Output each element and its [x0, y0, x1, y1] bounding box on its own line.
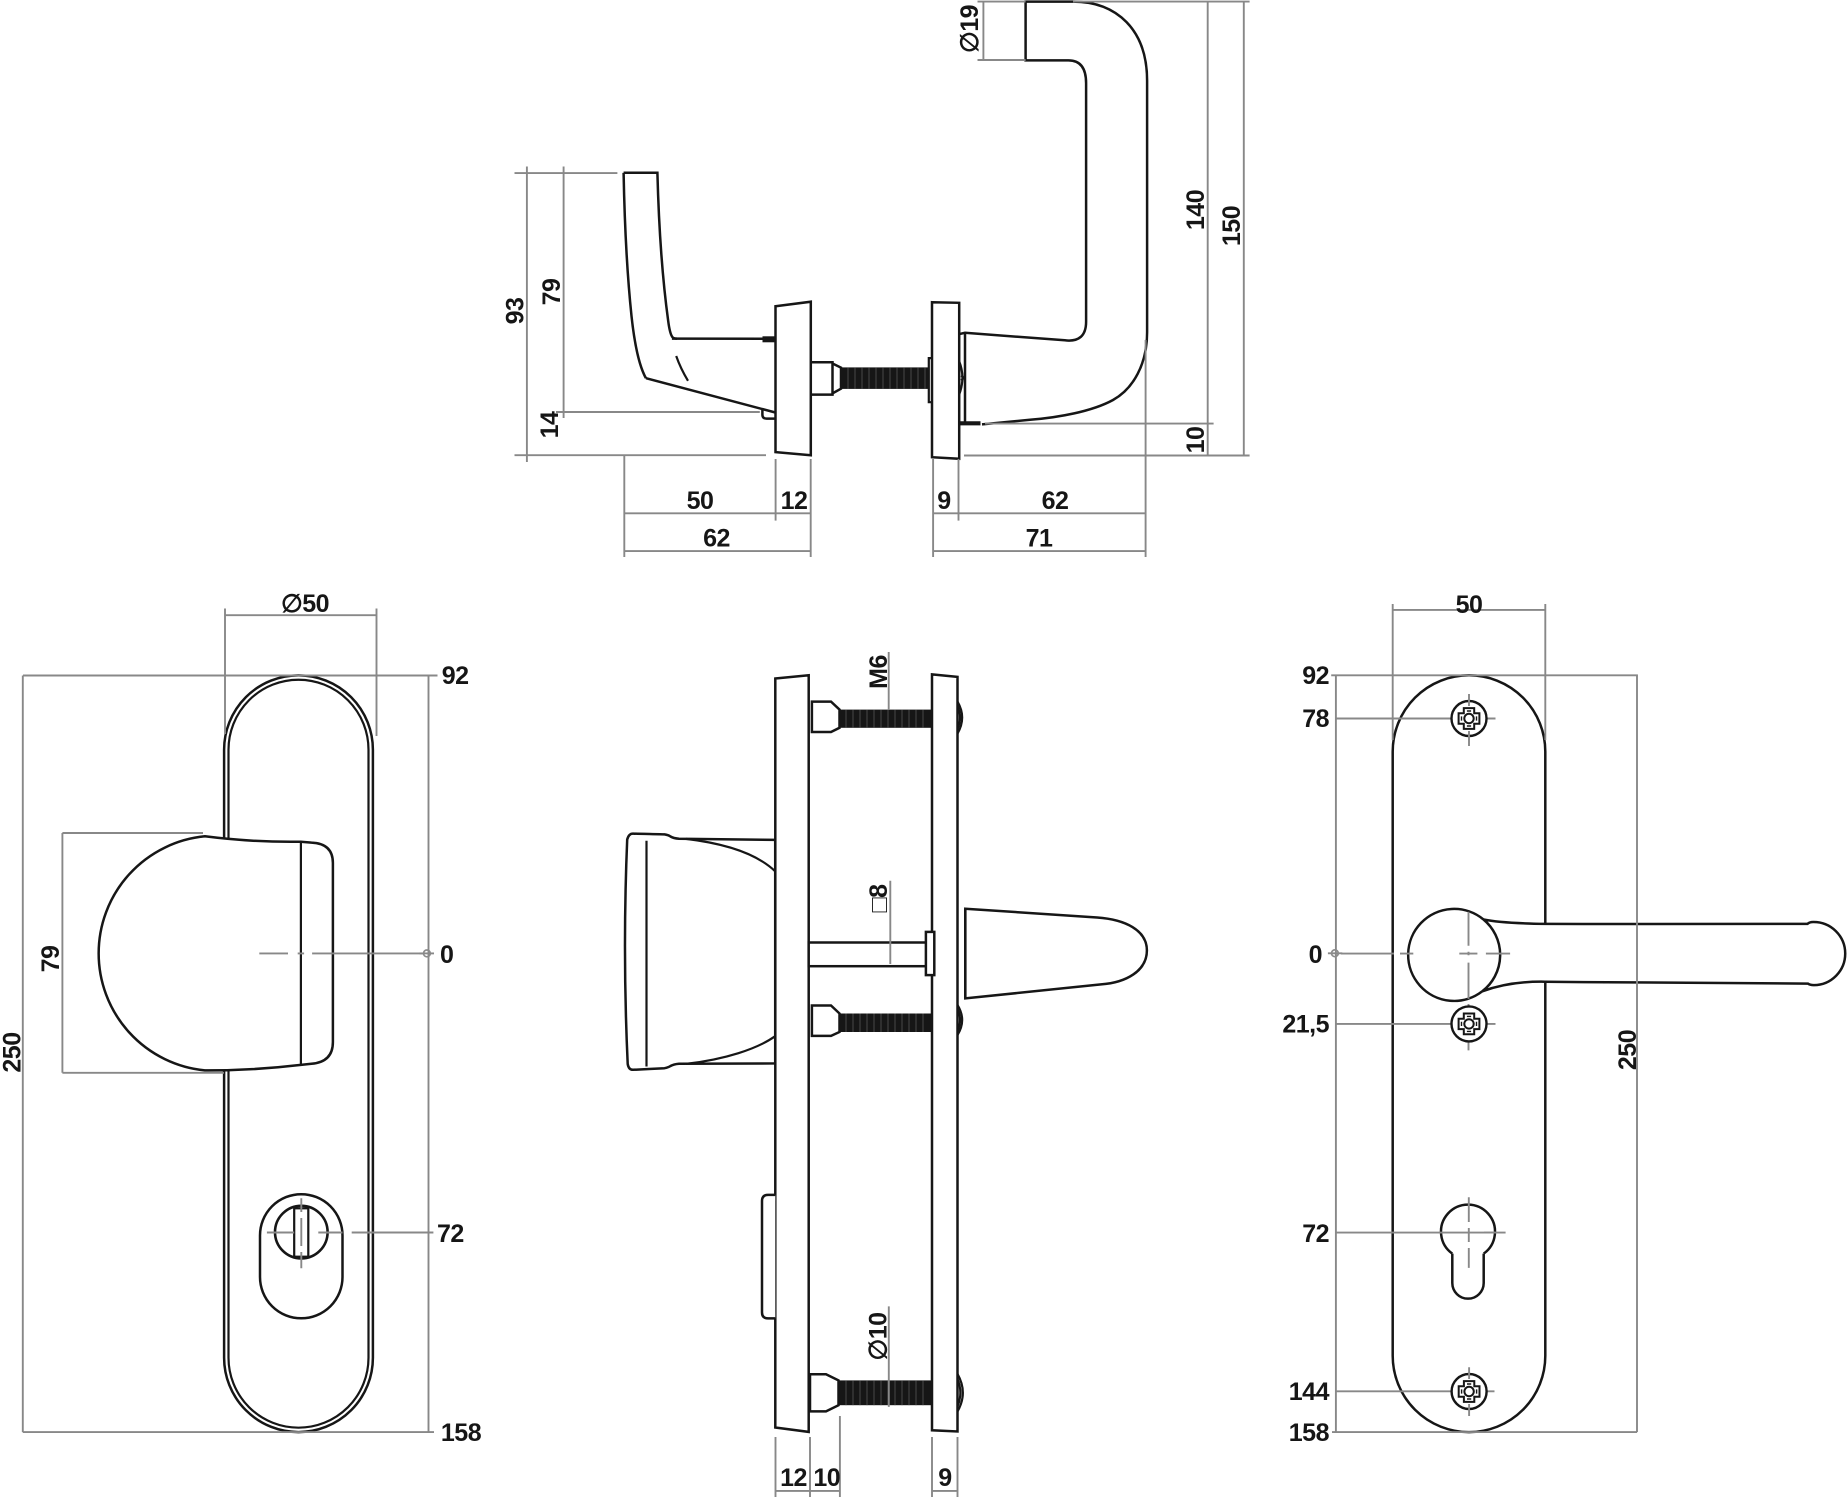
- svg-text:12: 12: [780, 1464, 807, 1492]
- svg-text:72: 72: [437, 1220, 464, 1248]
- svg-text:21,5: 21,5: [1282, 1011, 1329, 1039]
- svg-text:62: 62: [703, 525, 730, 553]
- svg-text:50: 50: [1456, 591, 1483, 619]
- svg-text:72: 72: [1302, 1220, 1329, 1248]
- svg-text:9: 9: [937, 487, 950, 515]
- svg-text:50: 50: [687, 487, 714, 515]
- svg-text:150: 150: [1218, 206, 1246, 246]
- svg-text:∅50: ∅50: [281, 590, 329, 618]
- svg-text:9: 9: [938, 1464, 951, 1492]
- svg-text:78: 78: [1302, 705, 1329, 733]
- svg-text:92: 92: [1302, 662, 1329, 690]
- svg-text:10: 10: [813, 1464, 840, 1492]
- svg-text:0: 0: [440, 941, 453, 969]
- svg-text:158: 158: [441, 1419, 482, 1447]
- svg-text:14: 14: [536, 411, 564, 438]
- svg-text:250: 250: [0, 1032, 27, 1072]
- svg-text:93: 93: [502, 298, 530, 325]
- svg-text:92: 92: [442, 662, 469, 690]
- svg-text:158: 158: [1289, 1419, 1330, 1447]
- svg-text:250: 250: [1614, 1030, 1642, 1070]
- svg-text:∅19: ∅19: [956, 5, 984, 53]
- svg-text:12: 12: [781, 487, 808, 515]
- svg-text:71: 71: [1026, 525, 1053, 553]
- svg-text:144: 144: [1289, 1378, 1330, 1406]
- svg-text:10: 10: [1182, 427, 1210, 454]
- svg-text:79: 79: [538, 279, 566, 306]
- svg-text:140: 140: [1182, 190, 1210, 230]
- svg-text:□8: □8: [865, 884, 893, 913]
- svg-text:0: 0: [1309, 941, 1322, 969]
- svg-text:62: 62: [1042, 487, 1069, 515]
- svg-text:79: 79: [37, 946, 65, 973]
